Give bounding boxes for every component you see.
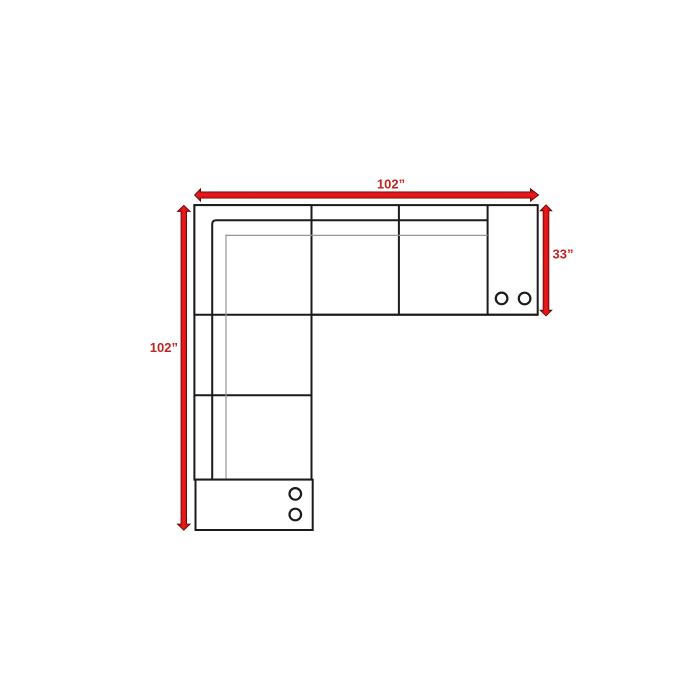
- svg-text:33”: 33”: [553, 246, 574, 261]
- svg-text:102”: 102”: [150, 340, 178, 355]
- svg-text:102”: 102”: [377, 177, 405, 192]
